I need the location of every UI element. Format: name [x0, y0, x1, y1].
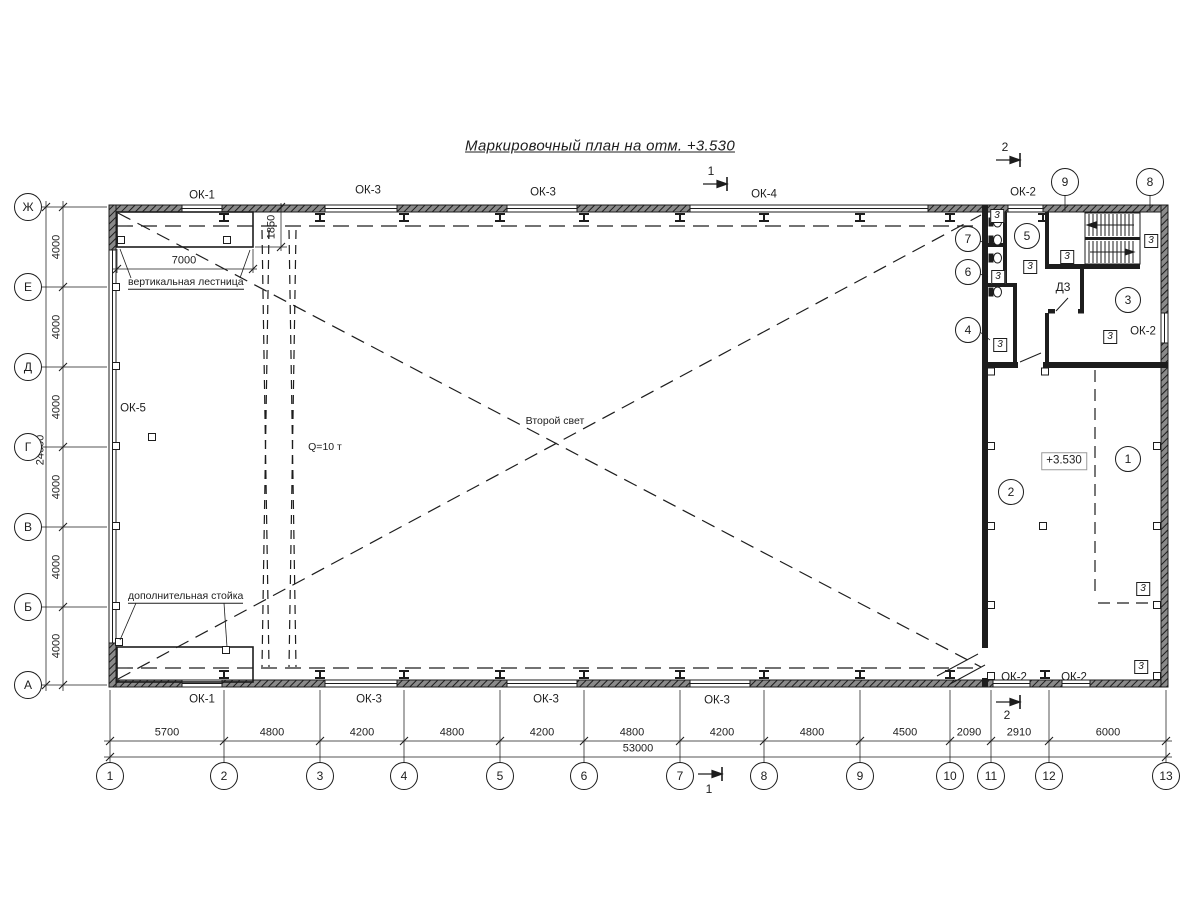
partition-marker-1: 3 — [990, 209, 1004, 223]
dim-left-1: 4000 — [52, 235, 63, 259]
drawing-title: Маркировочный план на отм. +3.530 — [465, 139, 735, 154]
dim-bottom-7: 4200 — [710, 728, 734, 739]
axis-col-7: 7 — [666, 762, 694, 790]
dim-bottom-9: 4500 — [893, 728, 917, 739]
window-label-top-ok3a: ОК-3 — [355, 185, 381, 197]
door-mark-d3: Д3 — [1056, 281, 1071, 293]
room-mark-1: 1 — [1115, 446, 1141, 472]
room-mark-5: 5 — [1014, 223, 1040, 249]
axis-col-8: 8 — [750, 762, 778, 790]
dim-platform-7000: 7000 — [172, 256, 196, 267]
dim-bottom-6: 4800 — [620, 728, 644, 739]
axis-col-6: 6 — [570, 762, 598, 790]
dim-bottom-10: 2090 — [957, 728, 981, 739]
room-mark-4: 4 — [955, 317, 981, 343]
axis-row-v: В — [14, 513, 42, 541]
window-label-bottom-ok2a: ОК-2 — [1001, 672, 1027, 684]
partition-marker-7: 3 — [1103, 330, 1117, 344]
dim-left-2: 4000 — [52, 315, 63, 339]
plan-linework — [0, 0, 1200, 900]
axis-col-5: 5 — [486, 762, 514, 790]
dim-bottom-total: 53000 — [623, 744, 654, 755]
section-2-top-label: 2 — [1002, 141, 1009, 153]
window-label-left-ok5: ОК-5 — [120, 403, 146, 415]
room-mark-3: 3 — [1115, 287, 1141, 313]
partition-marker-2: 3 — [991, 270, 1005, 284]
section-2-bottom-label: 2 — [1004, 709, 1011, 721]
drawing-canvas: Маркировочный план на отм. +3.530 ОК-1 О… — [0, 0, 1200, 900]
window-label-top-ok4: ОК-4 — [751, 189, 777, 201]
axis-row-e: Е — [14, 273, 42, 301]
second-light-label: Второй свет — [526, 416, 585, 427]
axis-col-9: 9 — [846, 762, 874, 790]
dim-bottom-3: 4200 — [350, 728, 374, 739]
dim-left-5: 4000 — [52, 555, 63, 579]
window-label-bottom-ok3b: ОК-3 — [533, 694, 559, 706]
axis-row-g: Г — [14, 433, 42, 461]
elevation-mark: +3.530 — [1041, 452, 1087, 470]
dim-bottom-4: 4800 — [440, 728, 464, 739]
partition-marker-8: 3 — [1136, 582, 1150, 596]
axis-col-12: 12 — [1035, 762, 1063, 790]
dim-bottom-1: 5700 — [155, 728, 179, 739]
dim-bottom-8: 4800 — [800, 728, 824, 739]
room-mark-6: 6 — [955, 259, 981, 285]
axis-col-3: 3 — [306, 762, 334, 790]
platform-dimensions — [113, 203, 287, 273]
partition-marker-4: 3 — [1023, 260, 1037, 274]
position-mark-9: 9 — [1051, 168, 1079, 196]
dim-left-6: 4000 — [52, 634, 63, 658]
interior-walls — [982, 205, 1168, 687]
window-label-top-ok2: ОК-2 — [1010, 187, 1036, 199]
window-label-room3-ok2: ОК-2 — [1130, 326, 1156, 338]
window-label-top-ok3b: ОК-3 — [530, 187, 556, 199]
window-label-bottom-ok1: ОК-1 — [189, 694, 215, 706]
dim-bottom-5: 4200 — [530, 728, 554, 739]
axis-row-zh: Ж — [14, 193, 42, 221]
dim-bottom-2: 4800 — [260, 728, 284, 739]
dim-ladder-1850: 1850 — [267, 215, 278, 239]
room-mark-7: 7 — [955, 226, 981, 252]
partition-marker-5: 3 — [1060, 250, 1074, 264]
partition-marker-6: 3 — [1144, 234, 1158, 248]
axis-row-a: А — [14, 671, 42, 699]
section-1-bottom-label: 1 — [706, 783, 713, 795]
vertical-ladder-label: вертикальная лестница — [128, 277, 244, 290]
partition-marker-9: 3 — [1134, 660, 1148, 674]
axis-col-2: 2 — [210, 762, 238, 790]
partition-marker-3: 3 — [993, 338, 1007, 352]
section-1-top-label: 1 — [708, 165, 715, 177]
window-label-bottom-ok2b: ОК-2 — [1061, 672, 1087, 684]
window-label-bottom-ok3c: ОК-3 — [704, 695, 730, 707]
position-mark-8: 8 — [1136, 168, 1164, 196]
dim-bottom-11: 2910 — [1007, 728, 1031, 739]
axis-row-b: Б — [14, 593, 42, 621]
left-dimensions — [42, 201, 107, 691]
axis-col-10: 10 — [936, 762, 964, 790]
dim-bottom-12: 6000 — [1096, 728, 1120, 739]
window-label-bottom-ok3a: ОК-3 — [356, 694, 382, 706]
room-mark-2: 2 — [998, 479, 1024, 505]
dim-left-4: 4000 — [52, 475, 63, 499]
crane-capacity-label: Q=10 т — [308, 442, 342, 453]
dim-left-3: 4000 — [52, 395, 63, 419]
axis-col-1: 1 — [96, 762, 124, 790]
axis-col-13: 13 — [1152, 762, 1180, 790]
axis-row-d: Д — [14, 353, 42, 381]
window-label-top-ok1: ОК-1 — [189, 190, 215, 202]
additional-post-label: дополнительная стойка — [128, 591, 243, 604]
axis-col-4: 4 — [390, 762, 418, 790]
axis-col-11: 11 — [977, 762, 1005, 790]
